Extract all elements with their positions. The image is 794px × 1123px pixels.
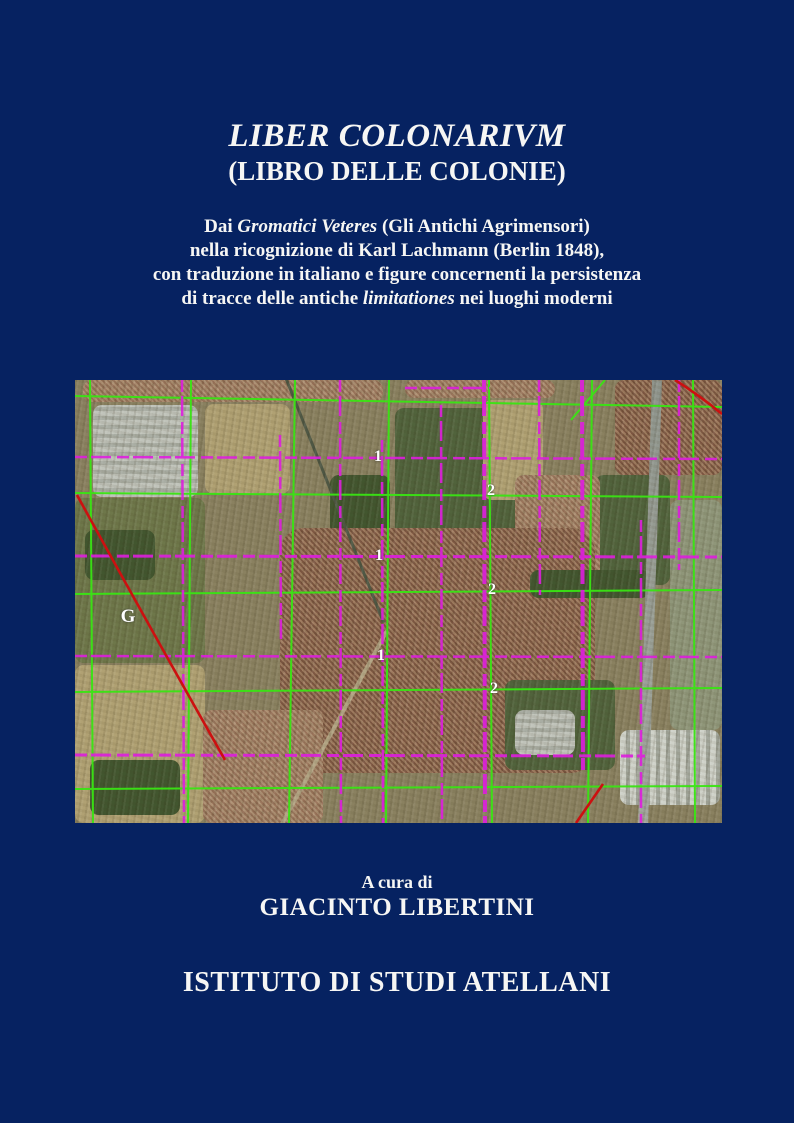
book-subtitle: Dai Gromatici Veteres (Gli Antichi Agrim… — [0, 215, 794, 311]
publisher-name: ISTITUTO DI STUDI ATELLANI — [0, 967, 794, 999]
book-title: LIBER COLONARIVM — [0, 118, 794, 155]
map-label-1: 1 — [374, 448, 382, 466]
map-label-2: 2 — [490, 680, 498, 698]
map-label-1: 1 — [375, 547, 383, 565]
editor-name: GIACINTO LIBERTINI — [0, 894, 794, 922]
book-cover-page: LIBER COLONARIVM (LIBRO DELLE COLONIE) D… — [0, 0, 794, 1123]
subtitle-line-4: di tracce delle antiche limitationes nei… — [181, 288, 612, 309]
subtitle-line-2: nella ricognizione di Karl Lachmann (Ber… — [190, 240, 604, 261]
subtitle-line-3: con traduzione in italiano e figure conc… — [153, 264, 641, 285]
grid-overlay — [75, 380, 722, 823]
map-label-2: 2 — [488, 581, 496, 599]
magenta-grid-lines — [75, 380, 722, 823]
map-label-G: G — [121, 606, 136, 628]
book-title-translation: (LIBRO DELLE COLONIE) — [0, 156, 794, 187]
byline: A cura di — [0, 872, 794, 893]
map-label-2: 2 — [487, 482, 495, 500]
map-label-1: 1 — [377, 647, 385, 665]
subtitle-line-1: Dai Gromatici Veteres (Gli Antichi Agrim… — [204, 216, 590, 237]
satellite-map-figure: G 1 1 1 2 2 2 — [75, 380, 722, 823]
